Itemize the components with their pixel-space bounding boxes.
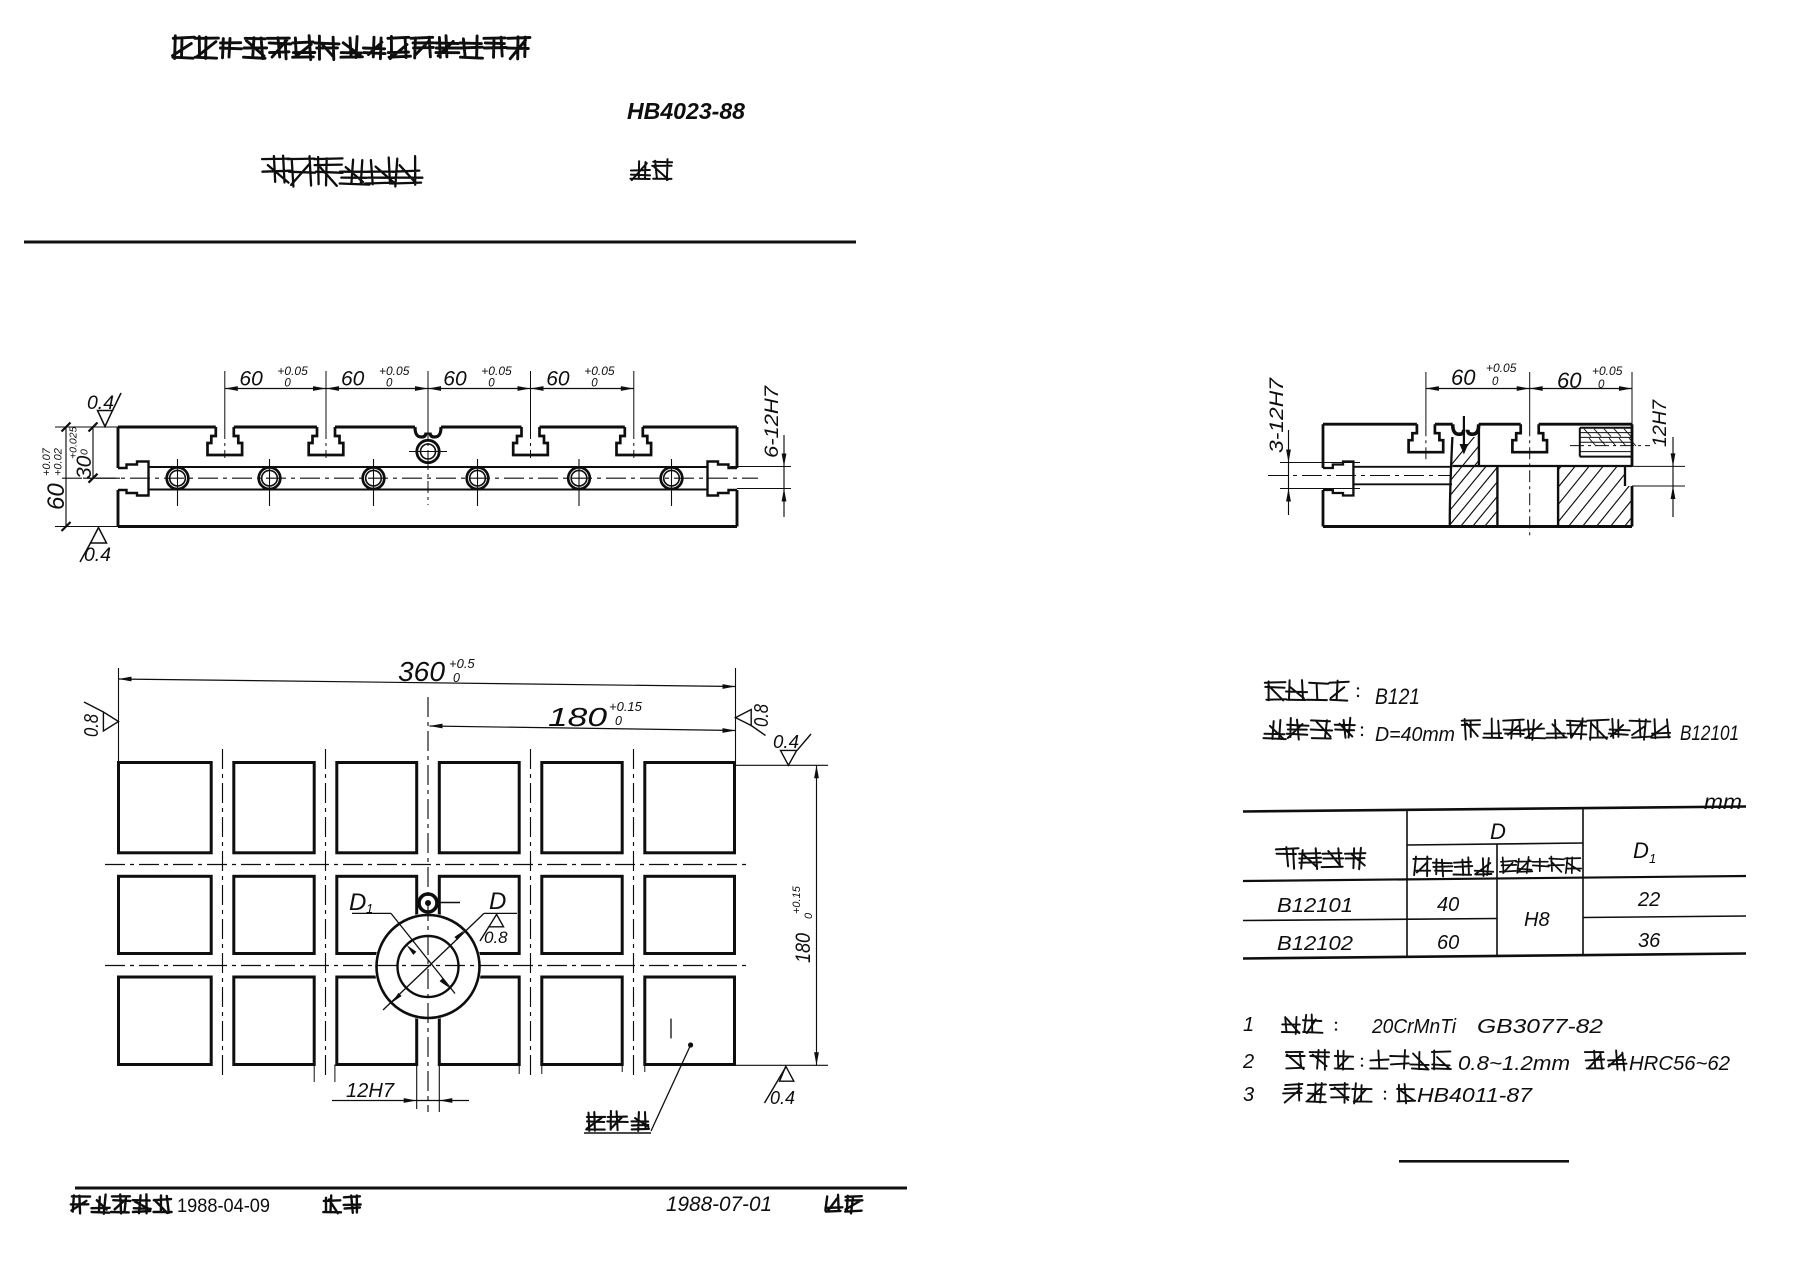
svg-text:60: 60 (239, 368, 263, 391)
svg-text:22: 22 (1637, 889, 1660, 911)
svg-text:D: D (1490, 819, 1506, 844)
svg-text:2: 2 (1242, 1051, 1254, 1073)
svg-text:+0.05: +0.05 (379, 364, 410, 378)
svg-text:36: 36 (1638, 930, 1661, 952)
svg-text:0.4: 0.4 (84, 545, 111, 566)
svg-text:360: 360 (398, 656, 445, 687)
svg-text:HB4023-88: HB4023-88 (627, 98, 745, 124)
svg-text:60: 60 (43, 483, 70, 510)
svg-text:0.4: 0.4 (770, 1087, 795, 1108)
svg-text:0: 0 (615, 714, 622, 728)
svg-text:40: 40 (1437, 894, 1459, 916)
svg-text:60: 60 (546, 368, 570, 391)
svg-text:0: 0 (1492, 376, 1499, 388)
svg-text:12H7: 12H7 (1650, 399, 1671, 447)
svg-text:+0.5: +0.5 (449, 656, 475, 671)
svg-text:1: 1 (1243, 1014, 1254, 1036)
svg-text:HRC56~62: HRC56~62 (1629, 1053, 1730, 1075)
svg-text:B12101: B12101 (1277, 895, 1353, 917)
svg-text:+0.05: +0.05 (481, 364, 512, 378)
svg-text:3-12H7: 3-12H7 (1267, 376, 1288, 453)
svg-text:D: D (349, 889, 366, 916)
svg-text:0.8~1.2mm: 0.8~1.2mm (1458, 1053, 1570, 1075)
svg-text:mm: mm (1704, 790, 1742, 814)
svg-text:+0.05: +0.05 (1592, 364, 1623, 378)
svg-text:+0.07: +0.07 (41, 447, 53, 476)
svg-text:D: D (489, 888, 506, 915)
svg-text:1988-07-01: 1988-07-01 (666, 1193, 772, 1216)
svg-text:D: D (1633, 838, 1649, 863)
svg-text:HB4011-87: HB4011-87 (1417, 1085, 1533, 1107)
svg-text:H8: H8 (1524, 909, 1550, 931)
svg-text:0: 0 (284, 378, 291, 390)
svg-text:0: 0 (1598, 379, 1605, 391)
svg-text:+0.02: +0.02 (53, 448, 65, 476)
svg-text:0.8: 0.8 (484, 928, 508, 947)
svg-text:+0.05: +0.05 (584, 364, 615, 378)
svg-text:60: 60 (443, 368, 467, 391)
svg-text:60: 60 (341, 368, 365, 391)
svg-text:60: 60 (1557, 368, 1582, 393)
svg-text:6-12H7: 6-12H7 (762, 384, 783, 458)
svg-text:+0.05: +0.05 (277, 364, 308, 378)
svg-text:180: 180 (792, 933, 815, 963)
svg-text:3: 3 (1243, 1084, 1254, 1106)
svg-text:0: 0 (79, 449, 91, 455)
svg-text:B12101: B12101 (1680, 722, 1739, 745)
svg-text:0: 0 (803, 912, 815, 919)
svg-text:12H7: 12H7 (346, 1080, 395, 1102)
svg-text:1988-04-09: 1988-04-09 (177, 1195, 270, 1217)
svg-text:1: 1 (1649, 851, 1656, 866)
svg-text:0.8: 0.8 (751, 704, 773, 727)
svg-text:0.4: 0.4 (773, 731, 799, 752)
svg-text:0: 0 (453, 671, 460, 685)
svg-text:+0.15: +0.15 (791, 885, 803, 914)
svg-text:0.8: 0.8 (81, 714, 103, 737)
svg-text:20CrMnTi: 20CrMnTi (1371, 1016, 1456, 1038)
svg-text:0: 0 (386, 378, 393, 390)
svg-text:0: 0 (488, 378, 495, 390)
svg-text:+0.15: +0.15 (609, 699, 643, 714)
svg-text:GB3077-82: GB3077-82 (1477, 1016, 1603, 1038)
svg-text:+0.05: +0.05 (1486, 361, 1517, 375)
svg-text:0: 0 (591, 378, 598, 390)
svg-text:B121: B121 (1375, 684, 1420, 709)
svg-text:60: 60 (1437, 932, 1459, 954)
svg-text:60: 60 (1451, 365, 1476, 390)
svg-text:B12102: B12102 (1277, 933, 1353, 955)
svg-text:D=40mm: D=40mm (1375, 724, 1455, 746)
svg-text:180: 180 (548, 702, 608, 732)
